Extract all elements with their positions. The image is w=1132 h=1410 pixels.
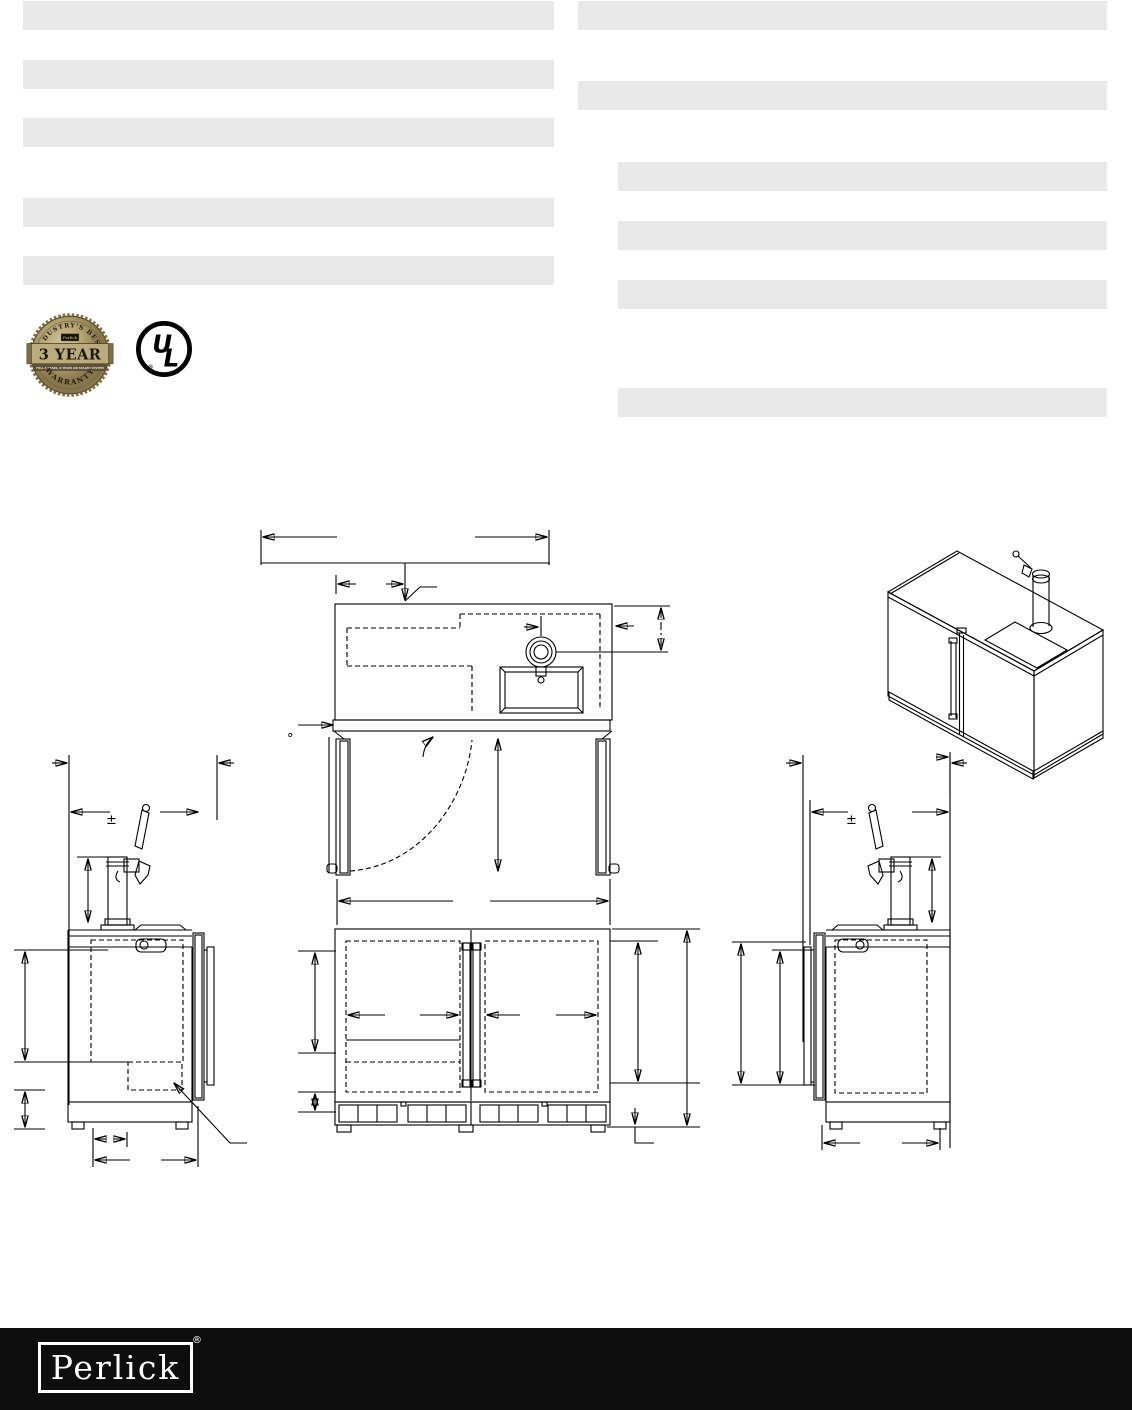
- compressor-box: [128, 1062, 182, 1090]
- iso-right-face: [1034, 630, 1103, 775]
- tolerance-symbol-left: ±: [106, 813, 117, 828]
- iso-tap-tower: [1013, 551, 1052, 634]
- isometric-view-drawing: [888, 551, 1103, 798]
- door-swing-degree-symbol: °: [287, 732, 294, 747]
- tap-tower-side-right: [868, 805, 941, 931]
- tap-tower-top: [524, 616, 668, 683]
- front-grille: [335, 1102, 610, 1125]
- perlick-registered-mark: ®: [192, 1335, 202, 1346]
- open-doors-plan: °: [287, 725, 619, 875]
- cabinet-top-outline: [335, 604, 612, 720]
- front-feet: [337, 1125, 605, 1132]
- footer-bar: Perlick ®: [0, 1328, 1132, 1410]
- interior-dashed-right: [835, 940, 927, 1093]
- door-handle-side: [207, 947, 214, 1085]
- cabinet-side-left: [68, 925, 214, 1129]
- drip-tray-top: [500, 667, 583, 713]
- door-swing-arc: [350, 740, 472, 871]
- top-view-drawing: °: [261, 530, 670, 925]
- iso-drip-tray: [985, 622, 1067, 668]
- right-door-glass: [485, 941, 598, 1092]
- interior-dashed-left: [91, 940, 183, 1062]
- iso-front-face: [888, 592, 1034, 775]
- front-view-drawing: [298, 929, 700, 1143]
- iso-top-face: [888, 551, 1103, 671]
- spec-sheet-page: INDUSTRY'S BEST Perlick 3 YEAR FULL 3 YE…: [0, 0, 1132, 1410]
- perlick-logo: Perlick ®: [38, 1342, 193, 1393]
- tolerance-symbol-right: ±: [846, 813, 857, 828]
- door-handle-side-right: [804, 947, 811, 1085]
- cabinet-side-right: [804, 925, 950, 1129]
- right-side-view-drawing: ±: [732, 755, 967, 1150]
- left-side-view-drawing: ±: [14, 755, 247, 1167]
- perlick-logo-text: Perlick: [51, 1348, 181, 1387]
- technical-drawing: °: [0, 0, 1132, 1410]
- left-door-glass: [346, 941, 460, 1092]
- interior-dashed-contour: [347, 614, 600, 712]
